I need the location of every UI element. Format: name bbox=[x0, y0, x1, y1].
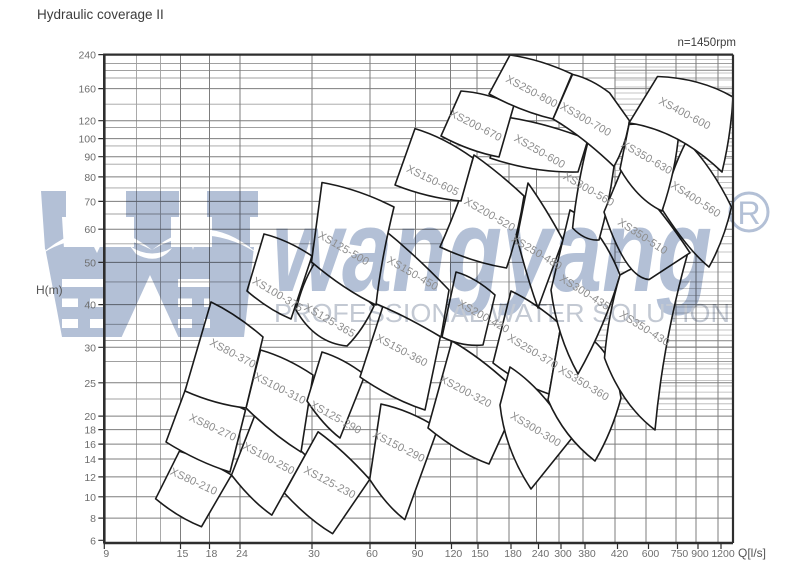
svg-text:150: 150 bbox=[471, 548, 489, 560]
svg-text:90: 90 bbox=[84, 152, 96, 164]
svg-text:Q[l/s]: Q[l/s] bbox=[738, 546, 766, 560]
svg-text:240: 240 bbox=[78, 50, 96, 62]
svg-text:14: 14 bbox=[84, 454, 96, 466]
svg-text:Hydraulic coverage II: Hydraulic coverage II bbox=[37, 7, 164, 22]
svg-text:15: 15 bbox=[177, 548, 189, 560]
svg-text:8: 8 bbox=[90, 513, 96, 525]
svg-text:18: 18 bbox=[206, 548, 218, 560]
svg-text:180: 180 bbox=[504, 548, 522, 560]
svg-text:40: 40 bbox=[84, 300, 96, 312]
svg-text:30: 30 bbox=[84, 342, 96, 354]
svg-text:300: 300 bbox=[554, 548, 572, 560]
svg-text:240: 240 bbox=[532, 548, 550, 560]
svg-text:20: 20 bbox=[84, 411, 96, 423]
svg-text:50: 50 bbox=[84, 257, 96, 269]
svg-text:90: 90 bbox=[412, 548, 424, 560]
svg-text:1200: 1200 bbox=[711, 548, 735, 560]
svg-text:12: 12 bbox=[84, 472, 96, 484]
svg-text:H(m): H(m) bbox=[36, 283, 63, 297]
svg-text:600: 600 bbox=[642, 548, 660, 560]
svg-text:16: 16 bbox=[84, 439, 96, 451]
svg-text:60: 60 bbox=[84, 224, 96, 236]
svg-text:9: 9 bbox=[103, 548, 109, 560]
svg-text:160: 160 bbox=[78, 84, 96, 96]
svg-text:120: 120 bbox=[78, 116, 96, 128]
svg-text:900: 900 bbox=[691, 548, 709, 560]
svg-text:120: 120 bbox=[445, 548, 463, 560]
svg-text:380: 380 bbox=[578, 548, 596, 560]
svg-text:n=1450rpm: n=1450rpm bbox=[678, 37, 737, 49]
svg-text:24: 24 bbox=[236, 548, 248, 560]
svg-text:6: 6 bbox=[90, 535, 96, 547]
svg-text:750: 750 bbox=[671, 548, 689, 560]
svg-text:420: 420 bbox=[611, 548, 629, 560]
svg-text:100: 100 bbox=[78, 134, 96, 146]
svg-text:25: 25 bbox=[84, 378, 96, 390]
svg-text:18: 18 bbox=[84, 425, 96, 437]
svg-text:60: 60 bbox=[366, 548, 378, 560]
svg-text:80: 80 bbox=[84, 172, 96, 184]
svg-text:R: R bbox=[737, 195, 760, 231]
svg-text:70: 70 bbox=[84, 196, 96, 208]
svg-text:30: 30 bbox=[308, 548, 320, 560]
svg-text:10: 10 bbox=[84, 492, 96, 504]
